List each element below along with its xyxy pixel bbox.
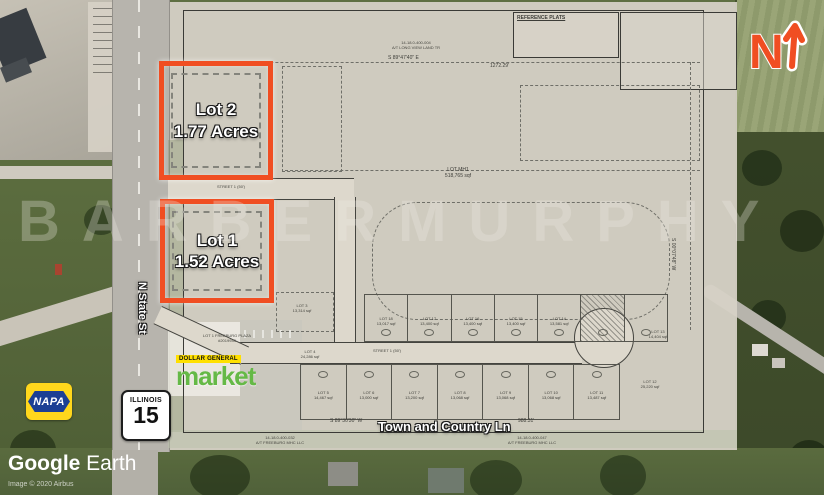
dim-bottom-bearing: S 89°30'30" W — [330, 418, 362, 424]
lot-mh1-label: LOT MH1518,765 sqf — [428, 167, 488, 180]
dash-line-mid — [285, 170, 700, 171]
featured-lot-2[interactable]: Lot 21.77 Acres — [159, 61, 273, 180]
north-arrow: N — [748, 14, 808, 78]
lot12-label: LOT 1225,220 sqf — [628, 380, 672, 390]
parcel-top-label: 14-18.0-400-004A/T LONG VIEW LAND TR — [386, 41, 446, 51]
tree — [470, 460, 522, 495]
lot-cell-hatched — [581, 294, 624, 342]
illinois-15-shield: ILLINOIS 15 — [121, 390, 171, 441]
north-arrow-shaft — [786, 26, 802, 66]
lot-cell: LOT 713,200 sqf — [392, 364, 438, 420]
lot-cell: LOT 913,068 sqf — [483, 364, 529, 420]
driveway-2 — [0, 166, 113, 179]
lot-cell: LOT 1513,400 sqf — [495, 294, 538, 342]
reference-plats-title: REFERENCE PLATS — [517, 15, 565, 21]
lot2-label: Lot 21.77 Acres — [174, 99, 258, 142]
parcel-bottom-right-label: 14-18.0-400-047A/T FREEBURG MHC LLC — [500, 436, 564, 446]
house — [328, 462, 358, 486]
n-state-st-label: N State St — [136, 282, 148, 334]
dim-top-length: 1272.29' — [490, 63, 509, 69]
north-letter: N — [749, 26, 784, 78]
napa-logo-text: NAPA — [33, 396, 65, 408]
tree — [600, 455, 646, 495]
house-2 — [428, 468, 464, 493]
dollar-general-market-logo: DOLLAR GENERAL market — [176, 347, 264, 385]
lot-cell: LOT 1413,581 sqf — [538, 294, 581, 342]
freeburg-plaza-label: LOT 1 FREEBURG PLAZA#2019943 — [196, 334, 258, 344]
parcel-bottom-left-label: 14-18.0-400-032A/T FREEBURG MHC LLC — [248, 436, 312, 446]
reference-plats-box-2 — [620, 12, 737, 90]
google-earth-bold: Google — [8, 452, 80, 475]
napa-logo: NAPA — [26, 383, 72, 420]
street1-lower-label: STREET 1 (50') — [352, 349, 422, 354]
dim-bottom-length: 988.31' — [518, 418, 534, 424]
lot13-label: LOT 1314,404 sqf — [636, 330, 680, 340]
farm-house-2 — [772, 358, 785, 368]
lot3-label: LOT 313,314 sqf — [280, 304, 324, 314]
lot-cell: LOT 1013,068 sqf — [529, 364, 575, 420]
lot-cell: LOT 813,068 sqf — [438, 364, 484, 420]
market-wordmark: market — [176, 365, 264, 387]
lot-cell: LOT 1613,400 sqf — [452, 294, 495, 342]
google-earth-watermark: Google Earth — [8, 452, 136, 476]
lot-row-north: LOT 1813,017 sqf LOT 1713,400 sqf LOT 16… — [364, 294, 668, 342]
lot-row-south: LOT 514,467 sqf LOT 613,000 sqf LOT 713,… — [300, 364, 620, 420]
lot-cell: LOT 514,467 sqf — [300, 364, 347, 420]
tree — [190, 455, 250, 495]
tree — [742, 150, 782, 186]
lot-cell: LOT 613,000 sqf — [347, 364, 393, 420]
lot-cell: LOT 1713,400 sqf — [408, 294, 451, 342]
dash-parcel-north — [520, 85, 700, 161]
town-and-country-ln-label: Town and Country Ln — [378, 419, 511, 434]
google-earth-light: Earth — [80, 452, 136, 475]
dash-parcel-east-of-lot2 — [282, 66, 342, 172]
napa-hexagon: NAPA — [28, 391, 70, 412]
lot4-label: LOT 424,286 sqf — [288, 350, 332, 360]
shield-number-label: 15 — [123, 404, 169, 427]
barbermurphy-watermark: BARBERMURPHY — [18, 188, 818, 255]
dim-top-bearing: S 89°47'40" E — [388, 55, 419, 61]
lot-cell: LOT 1813,017 sqf — [364, 294, 408, 342]
red-truck — [55, 264, 62, 275]
lot-cell: LOT 1113,487 sqf — [574, 364, 620, 420]
imagery-credit: Image © 2020 Airbus — [8, 481, 73, 488]
aerial-site-map: REFERENCE PLATS STREET 1 (50') STREET 1 … — [0, 0, 824, 495]
farm-house — [752, 344, 768, 356]
